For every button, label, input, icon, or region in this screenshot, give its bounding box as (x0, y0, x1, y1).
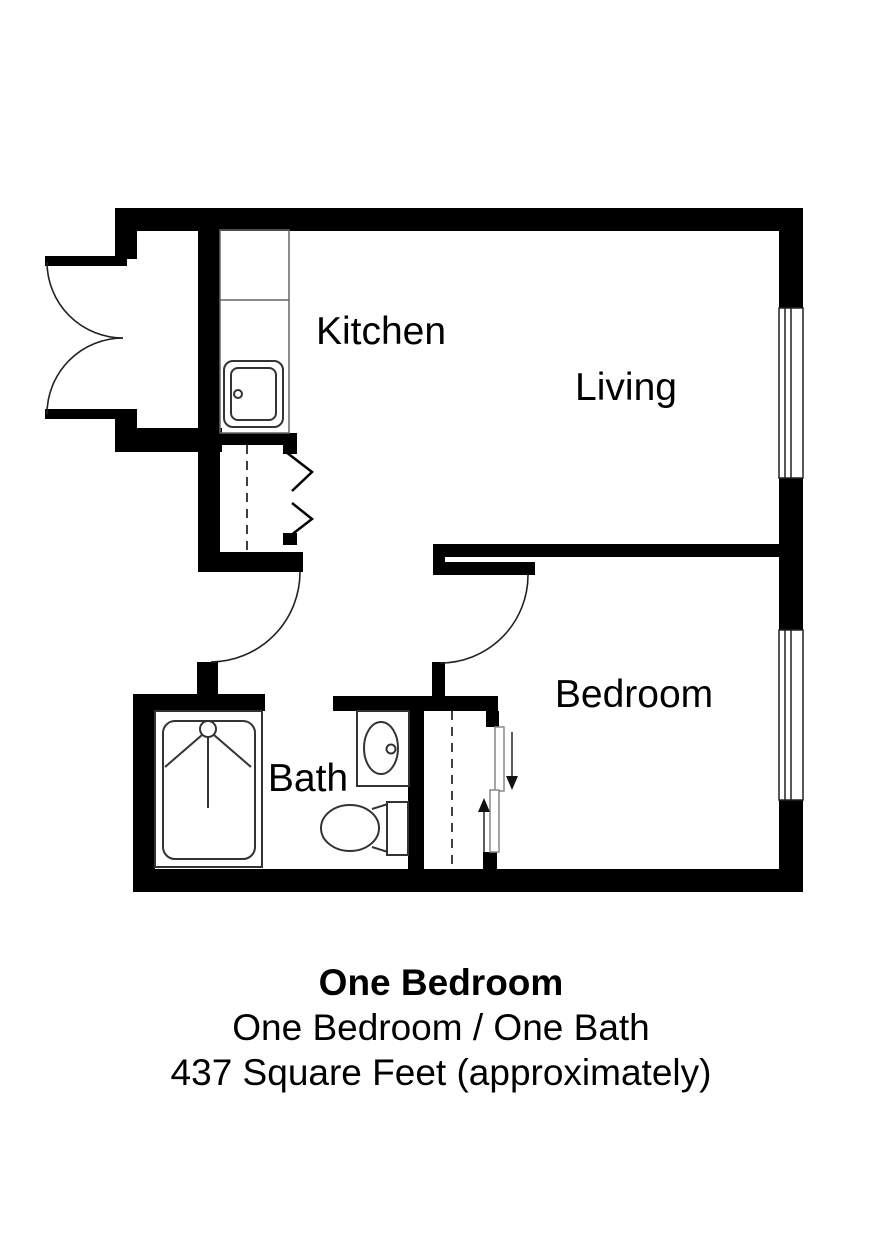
wall-pantry-stub-top (283, 445, 297, 454)
vanity-sink (357, 711, 409, 786)
wall-bath-north-left (133, 694, 265, 711)
wall-entry-stub-top (115, 208, 137, 259)
bath-label: Bath (268, 757, 348, 800)
living-label: Living (575, 366, 677, 409)
shower-spray-right (214, 735, 251, 767)
wall-bath-west (133, 694, 155, 892)
entry-door-swing-top (47, 262, 123, 338)
shower (155, 711, 262, 867)
bedroom-door-swing (440, 575, 528, 663)
toilet-seat-joint-top (372, 804, 388, 809)
sink-drain (234, 390, 242, 398)
bedroom-door-leaf (445, 562, 535, 575)
wall-entry-jamb-top (45, 256, 127, 266)
living-window (779, 308, 803, 478)
wall-living-bedroom-divider (433, 544, 779, 557)
caption-subtitle: One Bedroom / One Bath (232, 1007, 650, 1048)
wall-bedroom-closet-post (483, 852, 497, 869)
doors (47, 262, 528, 663)
toilet-tank (387, 802, 408, 855)
arrow-head (506, 776, 518, 790)
vanity-drain (387, 745, 396, 754)
wall-right-upper (779, 208, 803, 308)
floor-plan-page: Kitchen Living Bedroom Bath One Bedroom … (0, 0, 883, 1249)
slide-direction-down-arrow (506, 732, 518, 790)
wall-hall-door-post (197, 662, 218, 695)
wall-bottom (133, 869, 803, 892)
wall-bedroom-door-post (432, 662, 445, 700)
wall-right-middle (779, 478, 803, 630)
wall-bath-east (408, 696, 424, 870)
floor-plan-drawing: Kitchen Living Bedroom Bath One Bedroom … (0, 0, 883, 1249)
wall-bedroom-door-jamb (433, 544, 445, 575)
sliding-panel-upper (495, 727, 504, 791)
vanity-basin (364, 722, 398, 774)
caption-area: 437 Square Feet (approximately) (171, 1052, 712, 1093)
arrow-head (478, 798, 490, 812)
caption: One Bedroom One Bedroom / One Bath 437 S… (171, 962, 712, 1093)
toilet-seat-joint-bottom (372, 847, 388, 852)
shower-head (200, 721, 216, 737)
bedroom-closet (452, 711, 518, 868)
wall-pantry-south (198, 552, 303, 572)
slide-direction-up-arrow (478, 798, 490, 852)
wall-entry-jamb-bottom (45, 409, 127, 419)
sliding-panel-lower (490, 790, 499, 852)
caption-title: One Bedroom (319, 962, 564, 1003)
toilet-bowl (321, 805, 379, 851)
kitchen-fixtures (220, 230, 289, 433)
wall-top (115, 208, 803, 231)
toilet (321, 802, 408, 855)
kitchen-sink (224, 361, 283, 427)
entry-door-swing-bottom (47, 338, 123, 414)
bifold-door-upper (286, 452, 312, 491)
wall-pantry-north (212, 433, 297, 445)
wall-kitchen-west (198, 228, 220, 572)
wall-bedroom-closet-stub (486, 711, 499, 727)
shower-spray-left (165, 735, 202, 767)
pantry-closet (247, 445, 312, 552)
sink-basin (231, 368, 276, 420)
bath-hall-door-swing (211, 572, 300, 662)
bedroom-window (779, 630, 803, 800)
kitchen-label: Kitchen (316, 310, 446, 353)
bedroom-label: Bedroom (555, 673, 713, 716)
entry-french-door (47, 262, 123, 414)
